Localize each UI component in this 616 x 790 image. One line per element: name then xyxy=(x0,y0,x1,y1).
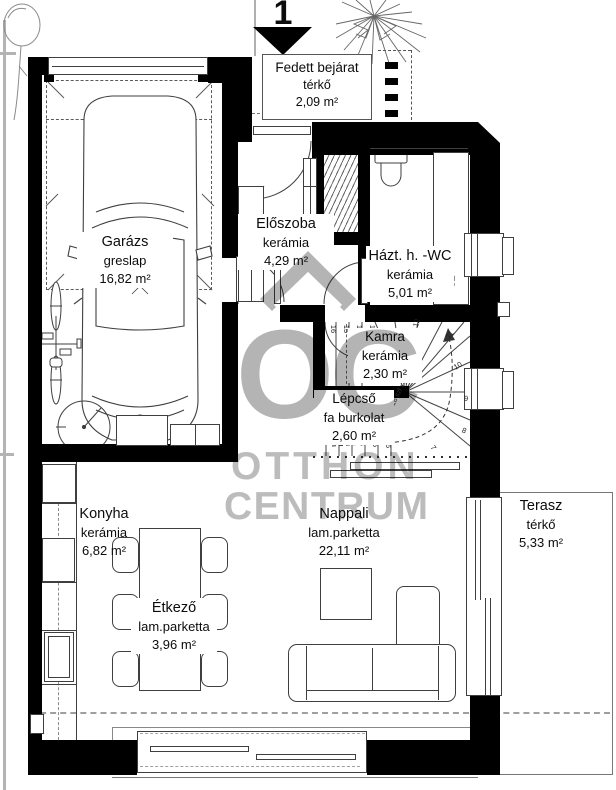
room-name: Terasz xyxy=(504,496,578,516)
room-area: 4,29 m² xyxy=(238,252,334,270)
room-name: Házt. h. -WC xyxy=(366,246,454,266)
room-area: 2,09 m² xyxy=(263,94,371,111)
room-label-fedett-bejarat: Fedett bejárat térkő 2,09 m² xyxy=(262,54,372,120)
room-name: Konyha xyxy=(60,504,148,524)
room-label-lepcso: Lépcső fa burkolat 2,60 m² xyxy=(314,390,394,445)
stair-tread-number: 9 xyxy=(460,393,473,404)
room-label-eloszoba: Előszoba kerámia 4,29 m² xyxy=(238,214,334,270)
room-name: Kamra xyxy=(348,328,422,347)
room-area: 3,96 m² xyxy=(131,636,217,654)
floor-plan: 1 Fedett bejárat térkő 2,09 m² Garázs gr… xyxy=(0,0,616,790)
room-floor: lam.parketta xyxy=(297,524,391,542)
room-floor: lam.parketta xyxy=(131,618,217,636)
room-floor: kerámia xyxy=(238,234,334,252)
room-name: Lépcső xyxy=(314,390,394,409)
room-label-kamra: Kamra kerámia 2,30 m² xyxy=(348,328,422,383)
room-label-konyha: Konyha kerámia 6,82 m² xyxy=(60,504,148,560)
room-label-wc: Házt. h. -WC kerámia 5,01 m² xyxy=(366,246,454,302)
room-name: Előszoba xyxy=(238,214,334,234)
room-label-etkezo: Étkező lam.parketta 3,96 m² xyxy=(131,598,217,654)
room-label-nappali: Nappali lam.parketta 22,11 m² xyxy=(297,504,391,560)
room-name: Garázs xyxy=(77,232,173,252)
room-floor: térkő xyxy=(504,516,578,534)
room-floor: fa burkolat xyxy=(314,409,394,427)
stair-tread-number: 16 xyxy=(328,323,338,335)
room-name: Nappali xyxy=(297,504,391,524)
room-area: 5,01 m² xyxy=(366,284,454,302)
room-label-terasz: Terasz térkő 5,33 m² xyxy=(504,496,578,552)
room-floor: greslap xyxy=(77,252,173,270)
room-area: 2,60 m² xyxy=(314,427,394,445)
room-name: Étkező xyxy=(131,598,217,618)
room-area: 16,82 m² xyxy=(77,270,173,288)
room-name: Fedett bejárat xyxy=(263,59,371,77)
room-floor: kerámia xyxy=(366,266,454,284)
room-area: 6,82 m² xyxy=(60,542,148,560)
room-area: 5,33 m² xyxy=(504,534,578,552)
room-floor: kerámia xyxy=(348,347,422,365)
room-area: 22,11 m² xyxy=(297,542,391,560)
wall-corner-cut xyxy=(478,122,500,143)
room-area: 2,30 m² xyxy=(348,365,422,383)
room-floor: kerámia xyxy=(60,524,148,542)
room-label-garazs: Garázs greslap 16,82 m² xyxy=(77,232,173,288)
room-floor: térkő xyxy=(263,77,371,94)
